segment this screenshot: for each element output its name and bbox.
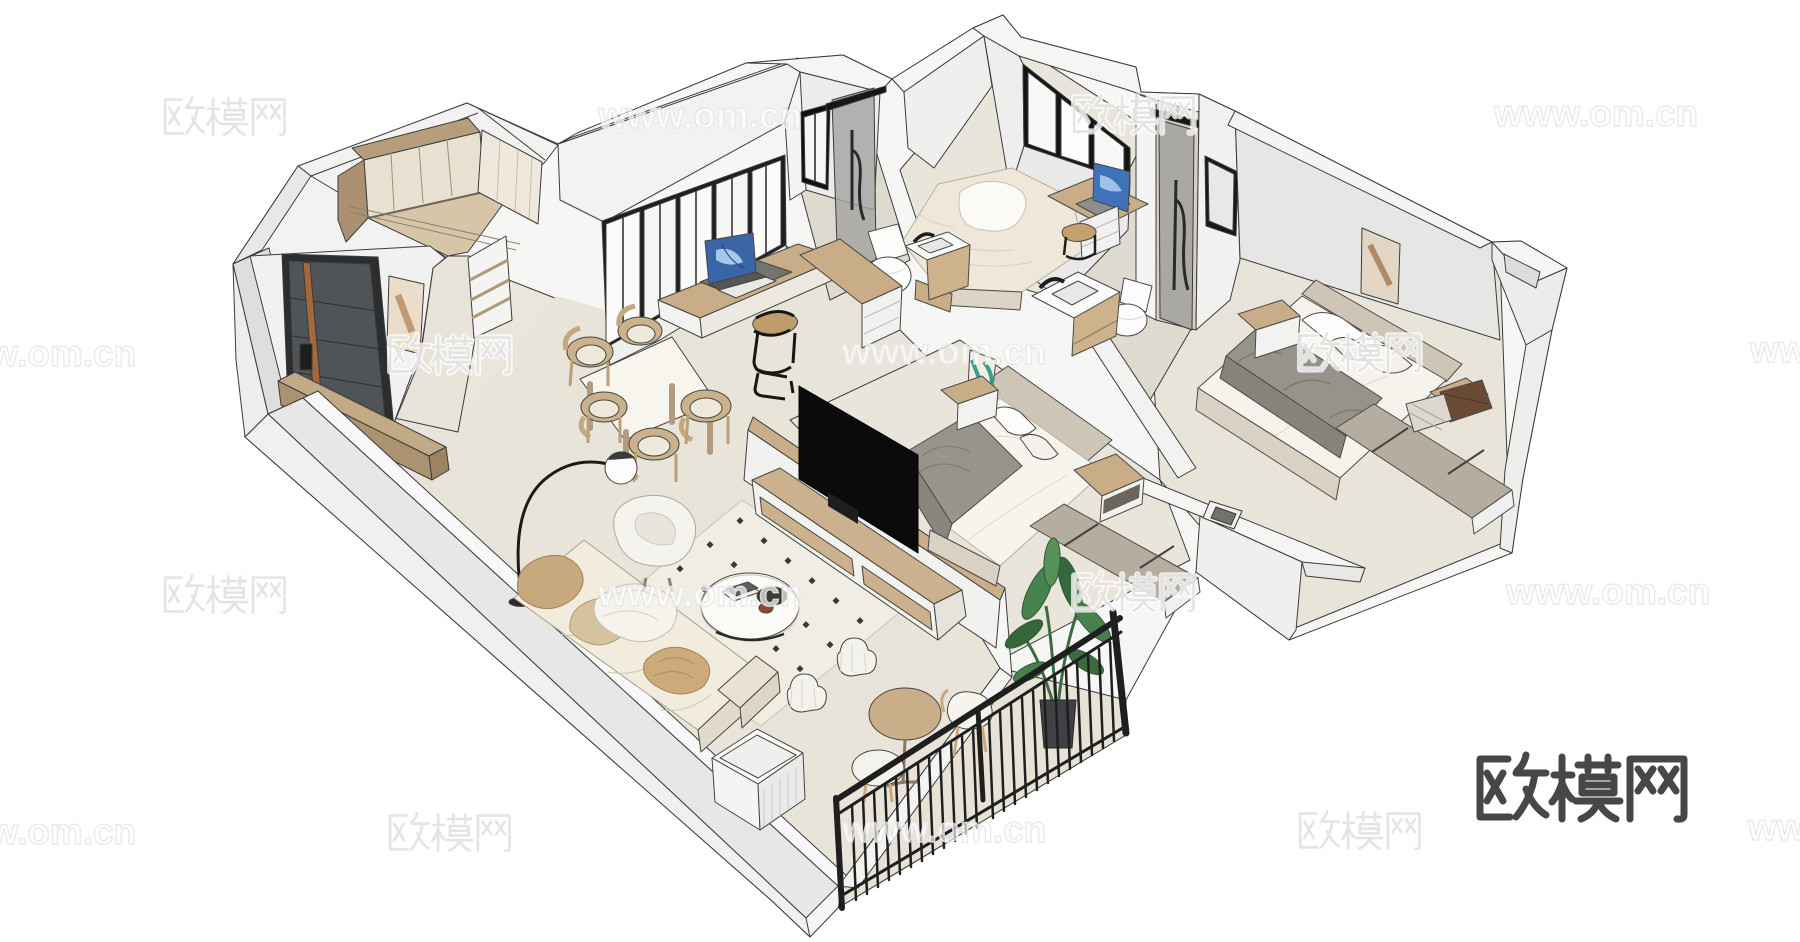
svg-text:www.om.cn: www.om.cn	[841, 331, 1046, 372]
svg-text:www.om.cn: www.om.cn	[597, 95, 802, 136]
svg-text:www.om.cn: www.om.cn	[0, 811, 136, 852]
svg-text:www.om.cn: www.om.cn	[0, 333, 136, 374]
svg-text:www.om.cn: www.om.cn	[1747, 807, 1800, 848]
svg-text:www.om.cn: www.om.cn	[1493, 93, 1698, 134]
svg-text:www.om.cn: www.om.cn	[1505, 571, 1710, 612]
svg-text:www.om.cn: www.om.cn	[841, 809, 1046, 850]
svg-text:www.om.cn: www.om.cn	[597, 573, 802, 614]
svg-text:www.om.cn: www.om.cn	[1749, 329, 1800, 370]
